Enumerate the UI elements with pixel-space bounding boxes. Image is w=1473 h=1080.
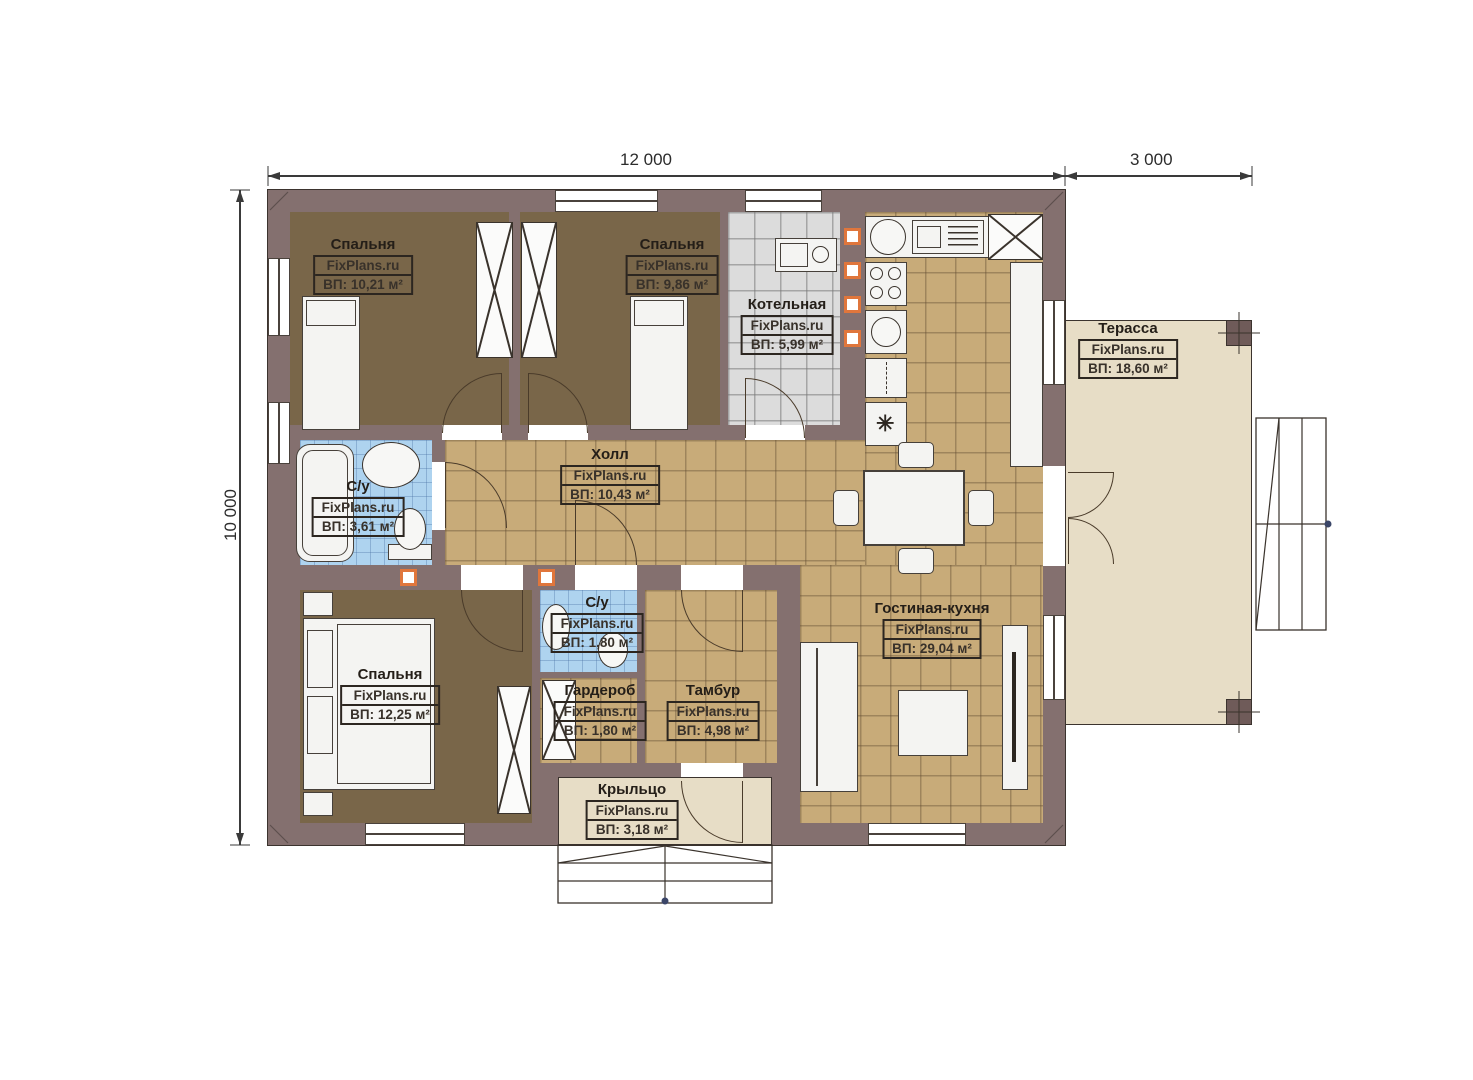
vent-hall-2	[538, 569, 555, 586]
nightstand-1	[303, 592, 333, 616]
door-terrace-leaf-top	[1068, 472, 1114, 518]
window-left-2	[268, 402, 290, 464]
room-label-terrace: Терасса FixPlans.ru ВП: 18,60 м²	[1078, 320, 1178, 379]
room-area: ВП: 12,25 м²	[342, 704, 438, 723]
room-label-bedroom-2: Спальня FixPlans.ru ВП: 9,86 м²	[626, 236, 719, 295]
wall-bedroom2-boiler	[720, 212, 728, 425]
bed-1-pillow	[306, 300, 356, 326]
door-terrace-leaf-bottom	[1068, 518, 1114, 564]
room-name: С/у	[312, 478, 405, 495]
bed-3-pillow-2	[307, 696, 333, 754]
room-name: Холл	[560, 446, 660, 463]
room-area: ВП: 4,98 м²	[669, 720, 758, 739]
room-area: ВП: 10,43 м²	[562, 484, 658, 503]
kitchen-washer-2-drum-icon	[871, 317, 901, 347]
wall-bedroom3-left	[290, 590, 300, 823]
room-name: Тамбур	[667, 682, 760, 699]
stove-burner-4	[888, 286, 901, 299]
room-name: Гардероб	[554, 682, 647, 699]
snowflake-icon: ✳	[876, 411, 894, 437]
window-bottom-2	[868, 823, 966, 845]
room-name: С/у	[551, 594, 644, 611]
room-name: Терасса	[1078, 320, 1178, 337]
dimension-width-terrace: 3 000	[1130, 150, 1173, 170]
watermark: FixPlans.ru	[315, 257, 411, 274]
window-bottom-1	[365, 823, 465, 845]
room-label-hall: Холл FixPlans.ru ВП: 10,43 м²	[560, 446, 660, 505]
wall-bathroom2-wardrobe	[540, 672, 637, 678]
door-opening-bedroom-3	[461, 565, 523, 590]
vent-boiler-1	[844, 228, 861, 245]
stove-burner-1	[870, 267, 883, 280]
watermark: FixPlans.ru	[884, 621, 980, 638]
window-left-1	[268, 258, 290, 336]
room-area: ВП: 18,60 м²	[1080, 358, 1176, 377]
room-label-wardrobe: Гардероб FixPlans.ru ВП: 1,80 м²	[554, 682, 647, 741]
sofa	[800, 642, 858, 792]
dishwasher-dash	[886, 362, 887, 394]
door-opening-porch	[681, 763, 743, 777]
watermark: FixPlans.ru	[562, 467, 658, 484]
room-label-bedroom-1: Спальня FixPlans.ru ВП: 10,21 м²	[313, 236, 413, 295]
room-name: Спальня	[626, 236, 719, 253]
watermark: FixPlans.ru	[743, 317, 832, 334]
fridge	[988, 214, 1043, 260]
dimension-line-top-terrace	[1065, 175, 1252, 177]
tv	[1012, 652, 1016, 762]
dining-chair-top	[898, 442, 934, 468]
room-area: ВП: 1,80 м²	[556, 720, 645, 739]
bed-2-pillow	[634, 300, 684, 326]
terrace-column-top	[1226, 320, 1252, 346]
window-right-2	[1043, 615, 1065, 700]
nightstand-2	[303, 792, 333, 816]
watermark: FixPlans.ru	[314, 499, 403, 516]
kitchen-washer-icon	[870, 219, 906, 255]
dimension-height: 10 000	[221, 489, 241, 541]
room-floor-terrace	[1065, 320, 1252, 725]
stove-burner-3	[870, 286, 883, 299]
watermark: FixPlans.ru	[556, 703, 645, 720]
dining-chair-bottom	[898, 548, 934, 574]
dining-chair-left	[833, 490, 859, 526]
wardrobe-cabinet-1	[476, 222, 513, 358]
window-top-1	[555, 190, 658, 212]
dimension-width-main: 12 000	[620, 150, 672, 170]
bed-3-pillow-1	[307, 630, 333, 688]
wall-top	[268, 190, 1065, 212]
door-opening-terrace	[1043, 466, 1065, 566]
room-area: ВП: 9,86 м²	[628, 274, 717, 293]
room-area: ВП: 3,18 м²	[588, 819, 677, 838]
watermark: FixPlans.ru	[628, 257, 717, 274]
wall-boiler-kitchen	[840, 212, 865, 440]
room-label-boiler: Котельная FixPlans.ru ВП: 5,99 м²	[741, 296, 834, 355]
door-opening-bathroom-1	[432, 462, 445, 530]
wardrobe-cabinet-2	[521, 222, 557, 358]
watermark: FixPlans.ru	[669, 703, 758, 720]
door-opening-tambour	[681, 565, 743, 590]
kitchen-sink-bowl	[917, 226, 941, 248]
room-label-living-kitchen: Гостиная-кухня FixPlans.ru ВП: 29,04 м²	[875, 600, 990, 659]
room-label-bathroom-1: С/у FixPlans.ru ВП: 3,61 м²	[312, 478, 405, 537]
stove-burner-2	[888, 267, 901, 280]
room-area: ВП: 5,99 м²	[743, 334, 832, 353]
sofa-back-line	[816, 648, 818, 786]
room-label-bathroom-2: С/у FixPlans.ru ВП: 1,80 м²	[551, 594, 644, 653]
kitchen-cabinet-right	[1010, 262, 1043, 467]
room-label-porch: Крыльцо FixPlans.ru ВП: 3,18 м²	[586, 781, 679, 840]
wall-tambour-right	[777, 565, 800, 823]
room-name: Спальня	[313, 236, 413, 253]
dining-chair-right	[968, 490, 994, 526]
wardrobe-cabinet-3	[497, 686, 531, 814]
room-name: Спальня	[340, 666, 440, 683]
boiler-unit	[780, 243, 808, 267]
room-area: ВП: 1,80 м²	[553, 632, 642, 651]
room-name: Крыльцо	[586, 781, 679, 798]
vent-boiler-3	[844, 296, 861, 313]
boiler-sink-icon	[812, 246, 829, 263]
watermark: FixPlans.ru	[588, 802, 677, 819]
watermark: FixPlans.ru	[342, 687, 438, 704]
coffee-table	[898, 690, 968, 756]
vent-boiler-4	[844, 330, 861, 347]
window-top-2	[745, 190, 822, 212]
vent-hall-1	[400, 569, 417, 586]
dimension-line-top-main	[268, 175, 1065, 177]
watermark: FixPlans.ru	[553, 615, 642, 632]
floor-plan: 12 000 3 000 10 000	[0, 0, 1473, 1080]
kitchen-drainboard	[948, 226, 978, 248]
dining-table	[863, 470, 965, 546]
room-area: ВП: 29,04 м²	[884, 638, 980, 657]
room-name: Гостиная-кухня	[875, 600, 990, 617]
window-right-1	[1043, 300, 1065, 385]
terrace-column-bottom	[1226, 699, 1252, 725]
vent-boiler-2	[844, 262, 861, 279]
room-name: Котельная	[741, 296, 834, 313]
watermark: FixPlans.ru	[1080, 341, 1176, 358]
room-area: ВП: 3,61 м²	[314, 516, 403, 535]
room-label-bedroom-3: Спальня FixPlans.ru ВП: 12,25 м²	[340, 666, 440, 725]
room-area: ВП: 10,21 м²	[315, 274, 411, 293]
room-label-tambour: Тамбур FixPlans.ru ВП: 4,98 м²	[667, 682, 760, 741]
door-opening-bathroom-2	[575, 565, 637, 590]
